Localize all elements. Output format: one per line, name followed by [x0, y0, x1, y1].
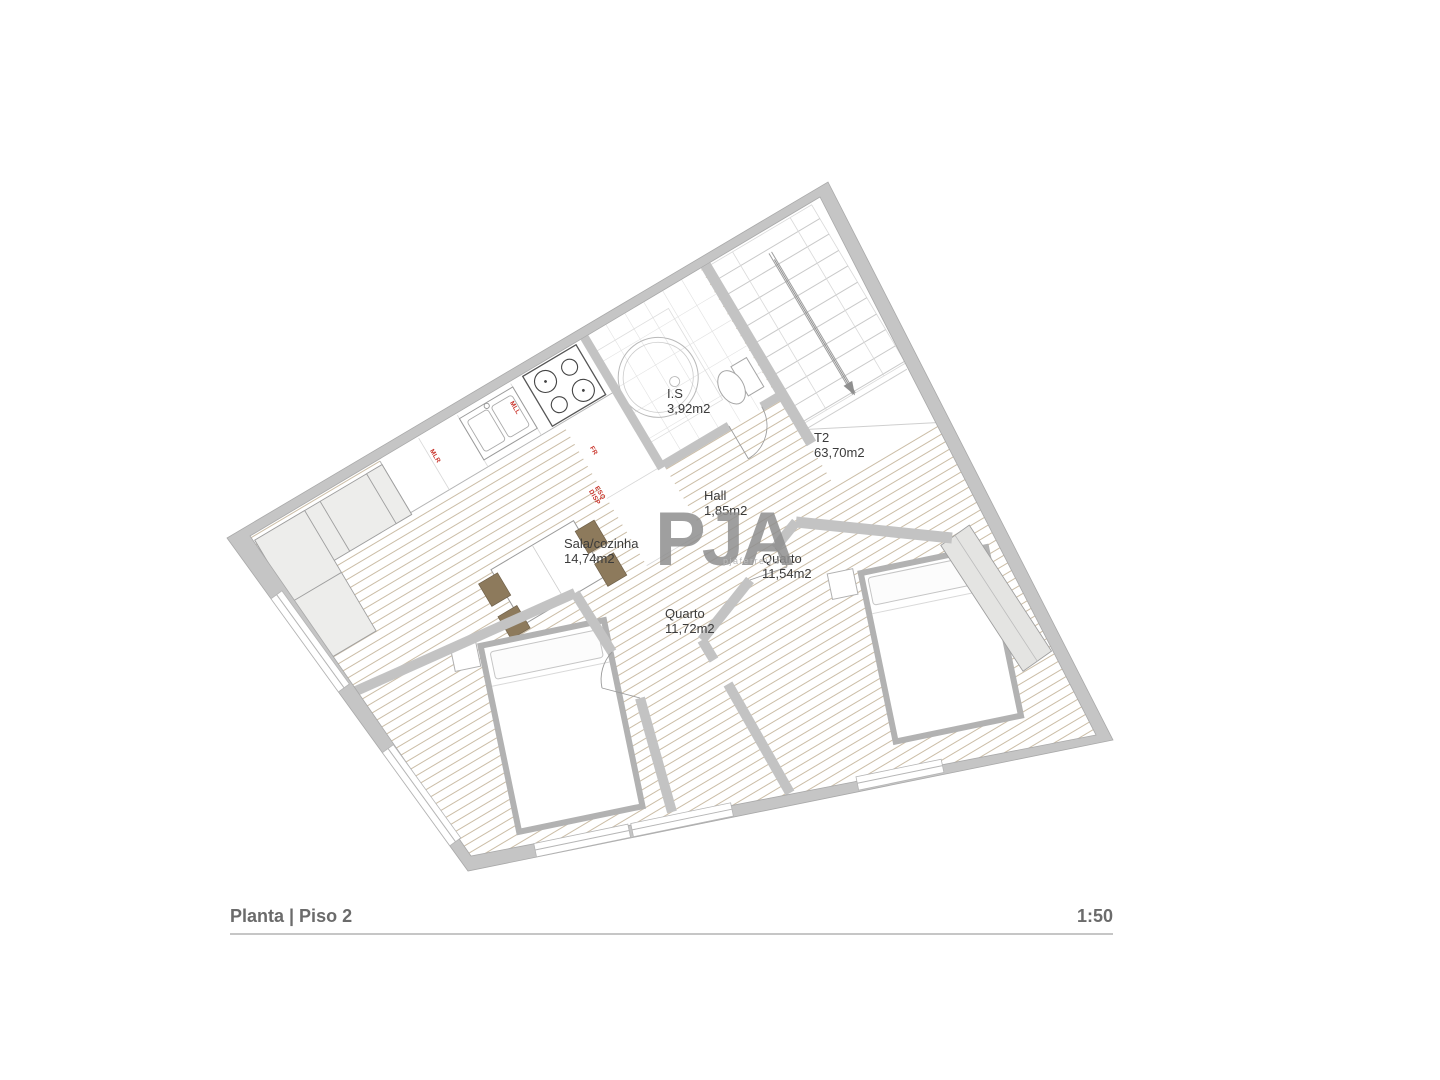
nightstand: [827, 569, 858, 600]
title-rule: [230, 933, 1113, 935]
drawing-scale: 1:50: [1077, 906, 1113, 927]
floor-plan-page: I.S3,92m2 T263,70m2 Hall1,85m2 Sala/cozi…: [0, 0, 1440, 1080]
watermark-logo: PJA: [655, 496, 791, 583]
room-label-is: I.S3,92m2: [667, 386, 710, 416]
drawing-title: Planta | Piso 2: [230, 906, 352, 927]
watermark-tagline: pjaferreira: [723, 556, 780, 566]
room-label-quarto-11-72: Quarto11,72m2: [665, 606, 715, 636]
room-label-sala: Sala/cozinha14,74m2: [564, 536, 638, 566]
room-label-t2: T263,70m2: [814, 430, 865, 460]
